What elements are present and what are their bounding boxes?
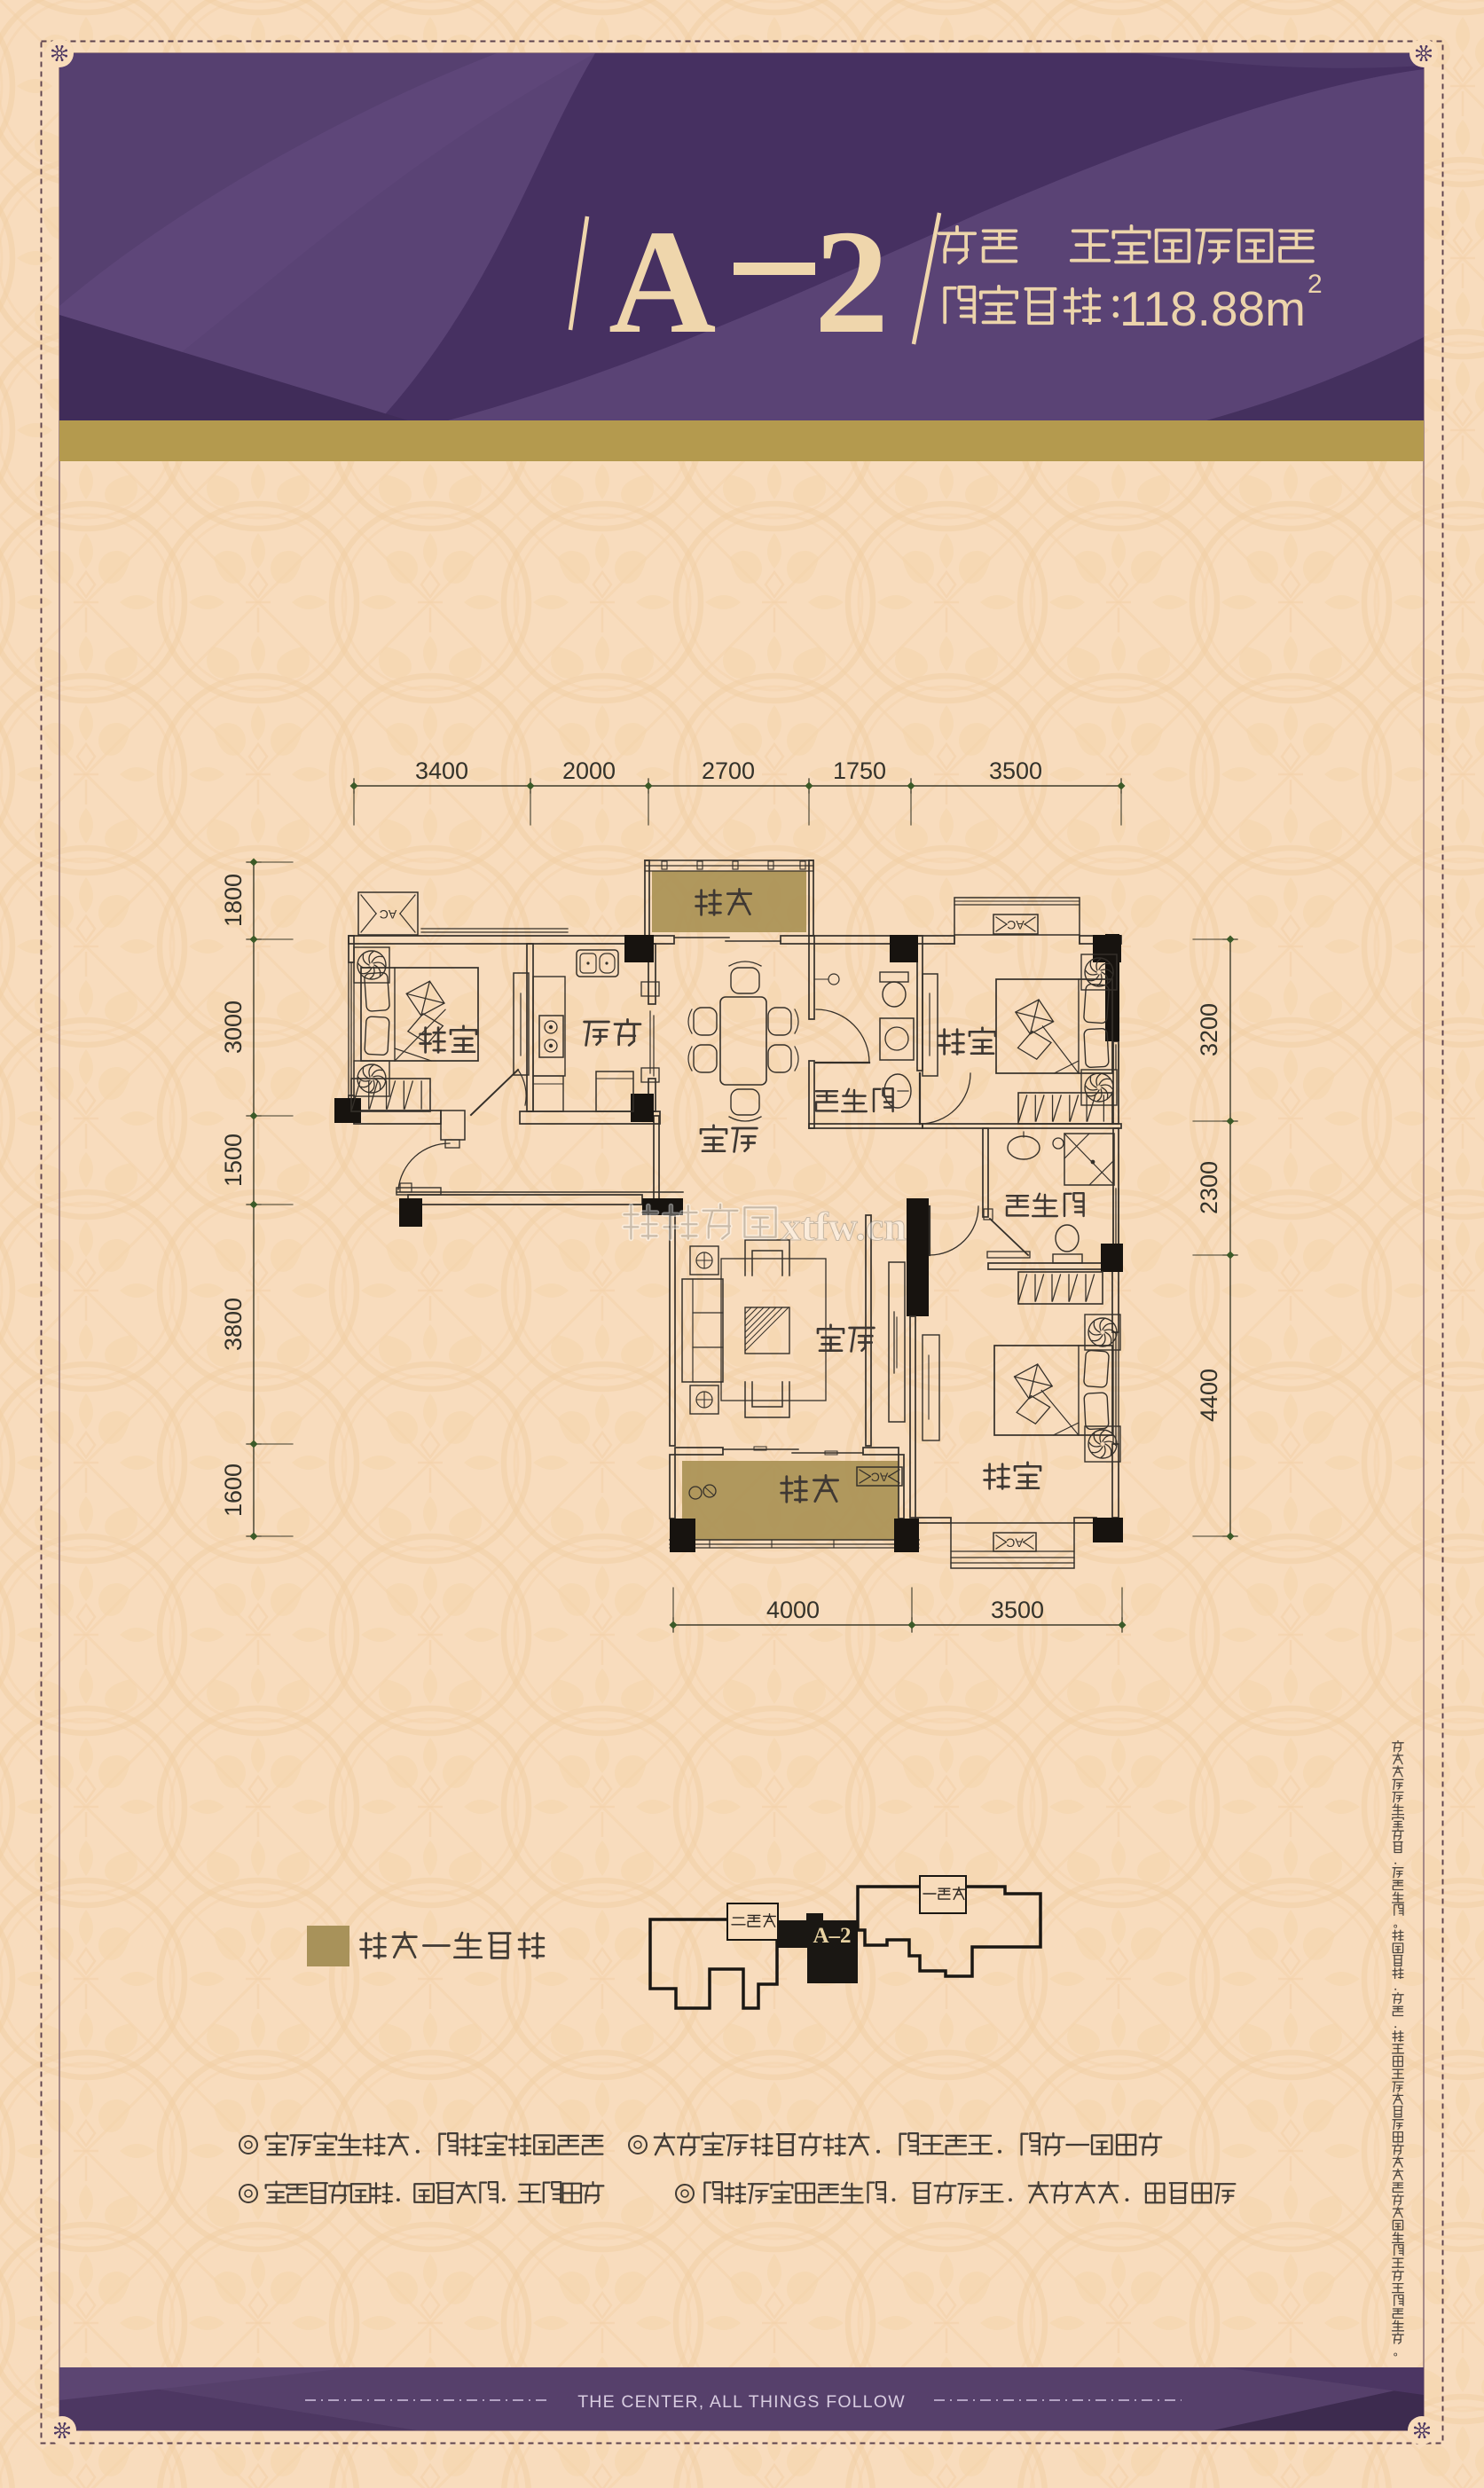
svg-text:3200: 3200 [1196,1003,1222,1056]
svg-text:1800: 1800 [220,874,247,927]
svg-text:2700: 2700 [702,757,755,784]
svg-text:1750: 1750 [833,757,886,784]
svg-text:xtfw.cn: xtfw.cn [781,1204,907,1249]
svg-text:2: 2 [814,200,889,365]
svg-text:A: A [609,200,718,365]
svg-text:118.88m: 118.88m [1119,281,1306,336]
svg-text:AC: AC [380,907,397,922]
svg-text:A–2: A–2 [813,1924,851,1948]
svg-text:2000: 2000 [562,757,616,784]
svg-text:AC: AC [1007,918,1024,932]
svg-text:4000: 4000 [766,1597,820,1623]
svg-text:AC: AC [1006,1536,1023,1550]
svg-text:3400: 3400 [415,757,468,784]
svg-text:3500: 3500 [989,757,1042,784]
svg-text:2: 2 [1307,270,1323,299]
svg-text:2300: 2300 [1196,1161,1222,1214]
svg-text:THE CENTER, ALL THINGS FOLLOW: THE CENTER, ALL THINGS FOLLOW [577,2392,906,2412]
svg-text:3500: 3500 [991,1597,1044,1623]
svg-text:1600: 1600 [220,1464,247,1517]
svg-text:3800: 3800 [220,1298,247,1351]
svg-text:4400: 4400 [1196,1369,1222,1422]
svg-text:1500: 1500 [220,1134,247,1187]
svg-text:3000: 3000 [220,1001,247,1054]
svg-text:AC: AC [871,1471,888,1485]
